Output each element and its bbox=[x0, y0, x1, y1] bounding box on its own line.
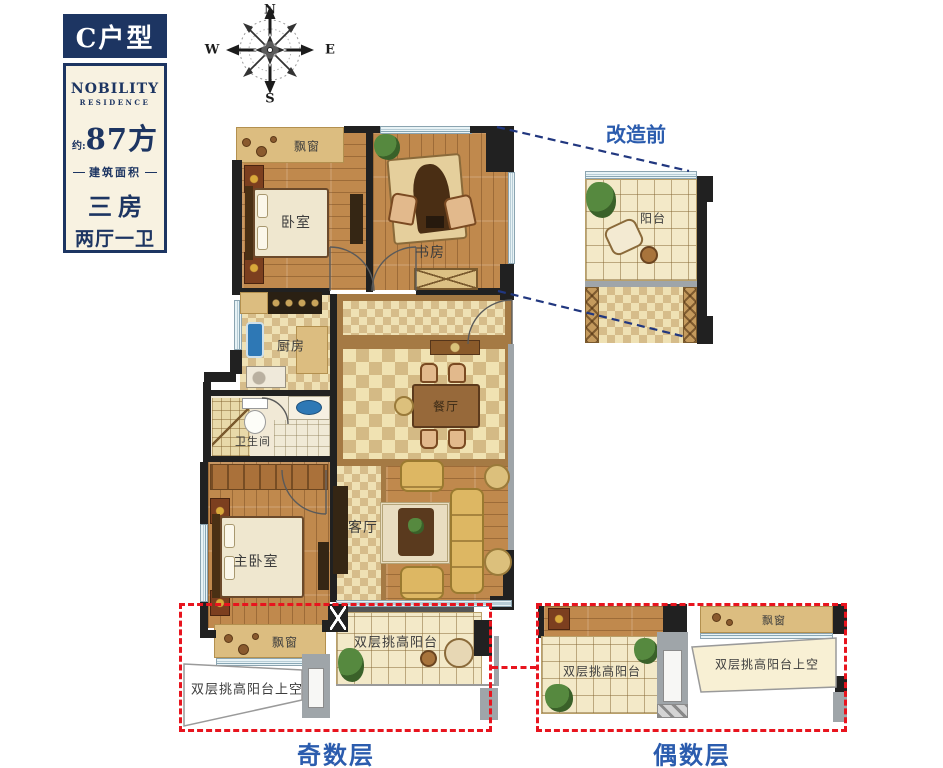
wardrobe bbox=[210, 464, 328, 490]
kitchen-counter bbox=[240, 292, 268, 314]
step-wall bbox=[204, 372, 236, 382]
study-cabinet bbox=[414, 268, 478, 290]
before-plant bbox=[586, 182, 616, 218]
bay-window-top bbox=[236, 127, 344, 163]
compass-west-label: W bbox=[205, 43, 220, 58]
living-label: 客厅 bbox=[348, 517, 378, 537]
brand-name: NOBILITY bbox=[66, 81, 164, 97]
desk-chair bbox=[388, 192, 419, 226]
plant bbox=[374, 134, 400, 160]
loveseat bbox=[400, 460, 444, 492]
before-title-label: 改造前 bbox=[606, 119, 666, 148]
even-void-label: 双层挑高阳台上空 bbox=[715, 656, 819, 673]
before-tile-floor bbox=[599, 287, 683, 343]
bathroom-tile bbox=[274, 420, 330, 458]
bay-window-bottom-label: 飘窗 bbox=[272, 634, 298, 651]
even-balcony-label: 双层挑高阳台 bbox=[563, 663, 641, 680]
compass-south-label: S bbox=[265, 92, 274, 107]
master-left-window bbox=[200, 524, 208, 602]
bay-decor-dot bbox=[242, 138, 251, 147]
toilet-tank bbox=[242, 398, 268, 409]
unit-badge-title: C户型 bbox=[76, 18, 155, 55]
armchair bbox=[400, 566, 444, 600]
before-balcony-label: 阳台 bbox=[640, 210, 666, 227]
dining-stool bbox=[394, 396, 414, 416]
even-floor-caption: 偶数层 bbox=[653, 736, 731, 768]
sideboard bbox=[430, 340, 480, 355]
bedroom-label: 卧室 bbox=[281, 212, 311, 232]
wall-right-block bbox=[500, 264, 514, 300]
area-caption-row: 建筑面积 bbox=[66, 164, 164, 180]
corner-column-topright bbox=[486, 126, 514, 172]
right-wall-gray bbox=[508, 344, 514, 550]
bed-headboard bbox=[245, 186, 253, 260]
dining-chair bbox=[448, 363, 466, 383]
pillow bbox=[257, 194, 268, 218]
master-bedroom-label: 主卧室 bbox=[234, 551, 279, 571]
before-hatch-left bbox=[585, 287, 599, 343]
red-connector-line bbox=[492, 666, 536, 669]
kitchen-sink bbox=[246, 322, 264, 358]
dining-chair bbox=[420, 363, 438, 383]
dining-chair bbox=[420, 429, 438, 449]
floor-plan-canvas: C户型 NOBILITY RESIDENCE 约: 87方 建筑面积 三房 两厅… bbox=[0, 0, 943, 768]
before-wall-top bbox=[697, 176, 713, 202]
area-row: 约: 87方 bbox=[66, 116, 164, 158]
entry-hall-floor bbox=[336, 294, 512, 342]
bathroom-label: 卫生间 bbox=[235, 433, 271, 449]
wall-top-a bbox=[344, 126, 380, 133]
area-prefix: 约: bbox=[72, 137, 86, 152]
washing-machine bbox=[246, 366, 286, 388]
odd-floor-caption: 奇数层 bbox=[297, 736, 375, 768]
study-top-window bbox=[380, 126, 472, 134]
pillow bbox=[257, 226, 268, 250]
odd-balcony-label: 双层挑高阳台 bbox=[354, 632, 438, 651]
bedroom-left-wall bbox=[232, 160, 242, 290]
compass-north-label: N bbox=[264, 3, 276, 18]
dining-chair bbox=[448, 429, 466, 449]
stove bbox=[268, 292, 322, 314]
unit-badge: C户型 bbox=[63, 14, 167, 58]
odd-floor-highlight-box bbox=[179, 603, 492, 732]
before-hatch-right bbox=[683, 287, 697, 343]
study-right-window bbox=[508, 172, 515, 264]
kitchen-label: 厨房 bbox=[277, 336, 305, 355]
bedroom-study-wall bbox=[366, 132, 373, 292]
study-label: 书房 bbox=[415, 242, 445, 262]
tv-wall-unit bbox=[333, 486, 348, 574]
pillow bbox=[224, 524, 235, 548]
bay-decor-dot bbox=[256, 146, 267, 157]
brand-subtitle: RESIDENCE bbox=[66, 98, 164, 107]
tv-cabinet bbox=[350, 194, 363, 244]
books bbox=[426, 216, 444, 228]
plant bbox=[408, 518, 424, 534]
dining-label: 餐厅 bbox=[433, 398, 459, 415]
master-left-wall-a bbox=[200, 462, 208, 524]
odd-void-label: 双层挑高阳台上空 bbox=[191, 679, 303, 698]
compass-east-label: E bbox=[325, 43, 335, 58]
sofa bbox=[450, 488, 484, 594]
area-caption: 建筑面积 bbox=[89, 164, 141, 180]
bay-window-top-label: 飘窗 bbox=[294, 138, 320, 155]
before-window bbox=[585, 171, 697, 179]
side-table bbox=[484, 464, 510, 490]
info-card: NOBILITY RESIDENCE 约: 87方 建筑面积 三房 两厅一卫 bbox=[63, 63, 167, 253]
kitchen-left-wall bbox=[230, 350, 242, 374]
bathroom-bottom-wall bbox=[203, 456, 333, 462]
before-wall-mid bbox=[697, 202, 707, 316]
bathroom-left-wall bbox=[203, 382, 211, 462]
before-wall-bottom bbox=[697, 316, 713, 344]
toilet-bowl bbox=[244, 410, 266, 434]
side-table bbox=[484, 548, 512, 576]
before-table bbox=[640, 246, 658, 264]
bay-decor-dot bbox=[270, 136, 277, 143]
divider-line bbox=[145, 172, 157, 173]
layout-line2: 两厅一卫 bbox=[66, 224, 164, 251]
tv-cabinet bbox=[318, 542, 329, 590]
area-value: 87方 bbox=[86, 116, 158, 158]
layout-line1: 三房 bbox=[66, 187, 164, 222]
bed-headboard bbox=[212, 514, 220, 598]
divider-line bbox=[73, 172, 85, 173]
bathroom-sink bbox=[296, 400, 322, 415]
even-bay-window-label: 飘窗 bbox=[762, 612, 786, 628]
balcony-right-rail bbox=[494, 636, 499, 686]
